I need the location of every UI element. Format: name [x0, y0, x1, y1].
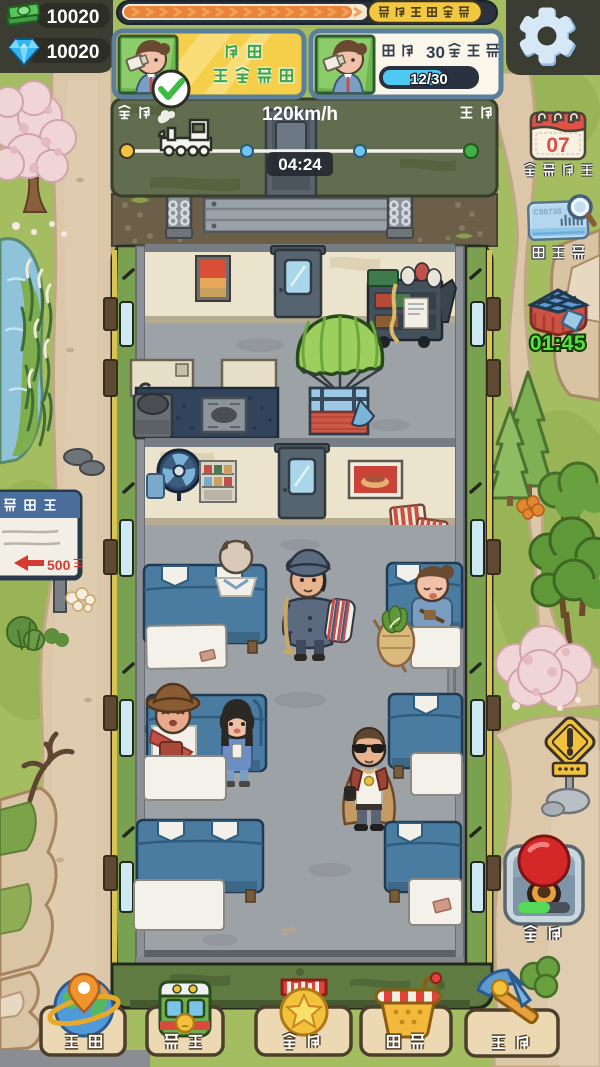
svg-text:10020: 10020 [47, 42, 100, 63]
svg-text:120km/h: 120km/h [262, 104, 338, 125]
svg-text:10020: 10020 [47, 7, 100, 28]
svg-text:04:24: 04:24 [278, 155, 322, 174]
svg-text:07: 07 [546, 134, 569, 157]
svg-text:30: 30 [426, 43, 445, 62]
svg-text:500: 500 [47, 557, 71, 573]
svg-text:12/30: 12/30 [410, 71, 448, 88]
svg-text:01:45: 01:45 [530, 332, 586, 355]
svg-text:C88738: C88738 [533, 207, 562, 217]
